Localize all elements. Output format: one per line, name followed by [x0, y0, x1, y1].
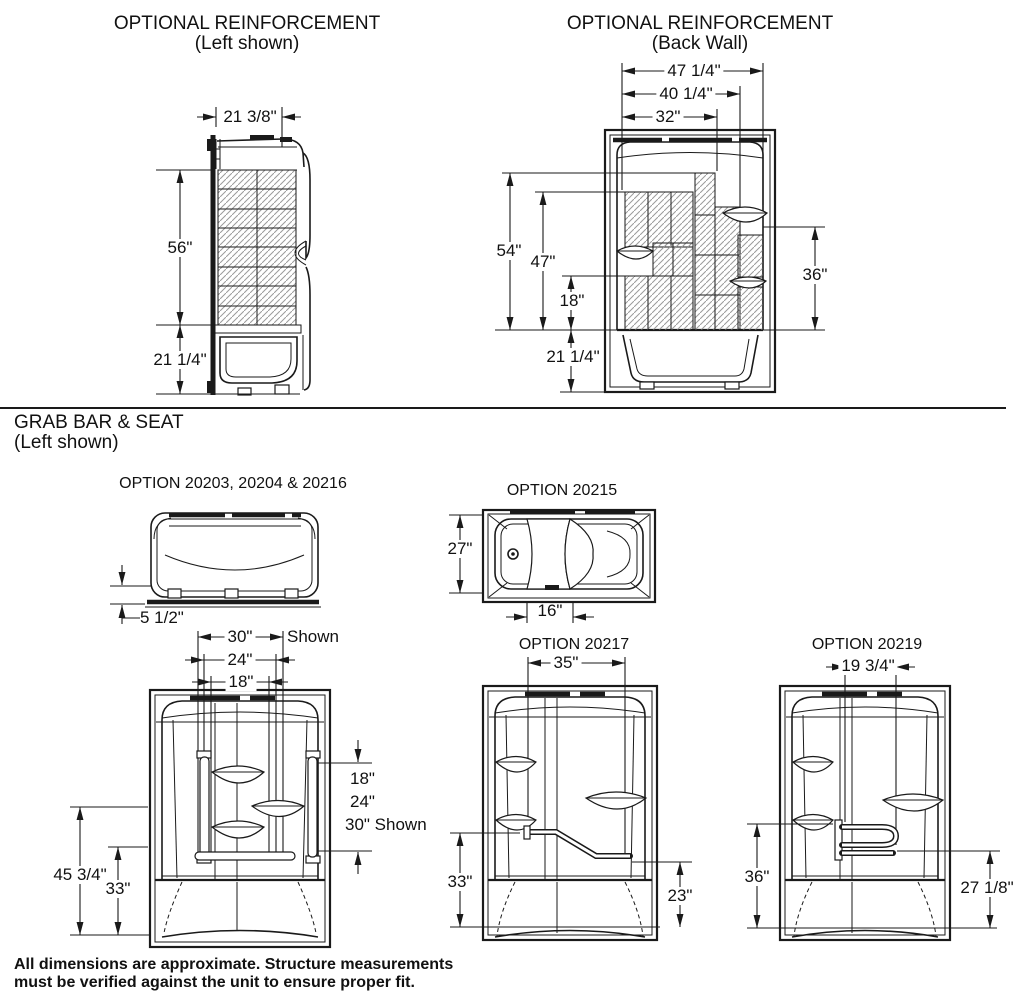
dim-left-width: 21 3/8" [223, 108, 276, 126]
dim-c-left: 33" [445, 873, 476, 891]
option-a-label: OPTION 20203, 20204 & 20216 [119, 476, 347, 493]
u-shaped-grab-bar [835, 820, 896, 860]
tub-apron [155, 876, 325, 937]
dim-a-right-30: 30" Shown [345, 816, 427, 834]
dim-back-width-2: 40 1/4" [656, 85, 715, 103]
drain [508, 549, 518, 559]
soap-dish-profile [295, 241, 306, 265]
reinforcement-left-drawing [100, 95, 340, 405]
seat [527, 519, 593, 590]
dim-d-width: 19 3/4" [838, 657, 897, 675]
soap-dishes [212, 766, 304, 838]
dim-back-right: 36" [800, 266, 831, 284]
dim-back-base: 21 1/4" [543, 348, 602, 366]
back-reinforcement-title: OPTIONAL REINFORCEMENT [567, 14, 833, 34]
dim-a-top-30: 30" [225, 628, 256, 646]
dim-a-top-shown: Shown [287, 628, 339, 646]
dim-a-left-45: 45 3/4" [50, 866, 109, 884]
angled-grab-bar [524, 826, 630, 856]
dim-left-base: 21 1/4" [150, 351, 209, 369]
dim-d-right: 27 1/8" [957, 879, 1016, 897]
dim-a-right-18: 18" [350, 770, 375, 788]
option-c-label: OPTION 20217 [519, 637, 629, 654]
dim-a-top-18: 18" [226, 673, 257, 691]
dim-b-seat: 16" [538, 602, 563, 620]
option-20217-elevation [440, 650, 710, 950]
dim-c-width: 35" [551, 654, 582, 672]
grab-bar-subtitle: (Left shown) [14, 433, 119, 453]
option-20219-elevation [735, 650, 1024, 950]
left-reinforcement-subtitle: (Left shown) [195, 34, 300, 54]
soap-dishes [496, 757, 646, 831]
horizontal-grab-bar [195, 852, 295, 860]
back-reinforcement-subtitle: (Back Wall) [652, 34, 748, 54]
dim-back-height-2: 47" [528, 253, 559, 271]
dim-back-width-3: 32" [653, 108, 684, 126]
option-d-label: OPTION 20219 [812, 637, 922, 654]
unit-frame [780, 686, 950, 940]
left-reinforcement-title: OPTIONAL REINFORCEMENT [114, 14, 380, 34]
tub-profile [215, 325, 303, 395]
dim-back-width-1: 47 1/4" [664, 62, 723, 80]
dim-c-right: 23" [665, 887, 696, 905]
reinforcement-panel [218, 170, 296, 325]
unit-frame [150, 690, 330, 947]
dim-back-height-1: 54" [494, 242, 525, 260]
dim-a-left-33: 33" [103, 880, 134, 898]
dim-a-rim: 5 1/2" [140, 609, 184, 627]
dim-d-left: 36" [742, 868, 773, 886]
dim-b-depth: 27" [445, 540, 476, 558]
dim-a-top-24: 24" [225, 651, 256, 669]
section-divider [0, 407, 1006, 409]
dim-a-right-24: 24" [350, 793, 375, 811]
tub-top-view [145, 513, 321, 607]
dim-back-height-3: 18" [557, 292, 588, 310]
footer-line-1: All dimensions are approximate. Structur… [14, 957, 453, 974]
spec-sheet: OPTIONAL REINFORCEMENT (Left shown) OPTI… [0, 0, 1024, 1007]
footer-line-2: must be verified against the unit to ens… [14, 975, 415, 992]
grab-bar-title: GRAB BAR & SEAT [14, 413, 184, 433]
tub-apron [488, 876, 652, 937]
tub-front [623, 335, 758, 389]
option-20203-top-view [105, 505, 330, 637]
soap-dishes [793, 757, 943, 831]
option-b-label: OPTION 20215 [507, 483, 617, 500]
unit-frame [483, 686, 657, 940]
dim-left-height: 56" [165, 239, 196, 257]
